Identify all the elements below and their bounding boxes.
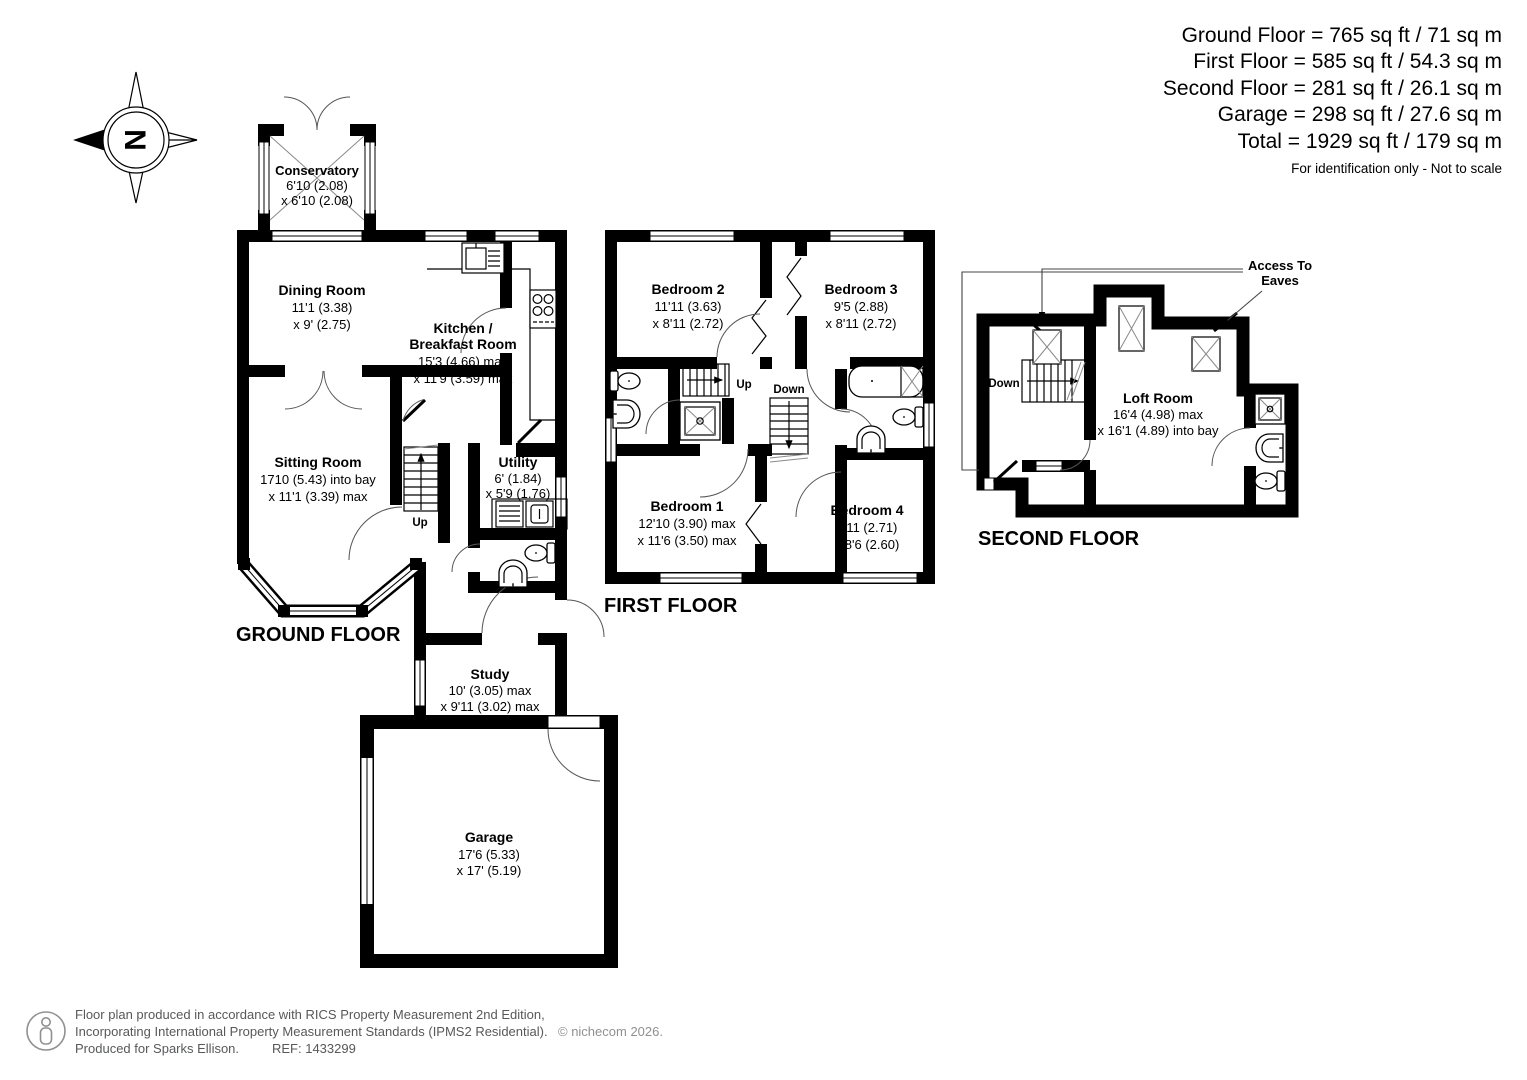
loft-room-label: Loft Room xyxy=(1123,390,1193,406)
study-dim2: x 9'11 (3.02) max xyxy=(440,699,540,714)
first-up-label: Up xyxy=(736,379,751,391)
bedroom3-label: Bedroom 3 xyxy=(824,281,897,297)
footer-ref: REF: 1433299 xyxy=(272,1041,356,1056)
sink-icon xyxy=(857,426,885,453)
access-to-eaves-label-1: Access To xyxy=(1248,258,1312,273)
bedroom4-label: Bedroom 4 xyxy=(830,502,903,518)
hob-icon xyxy=(530,290,556,328)
bedroom1-label: Bedroom 1 xyxy=(650,498,723,514)
utility-label: Utility xyxy=(499,454,538,470)
bedroom2-dim2: x 8'11 (2.72) xyxy=(653,316,724,331)
ground-stairs-up xyxy=(404,445,438,511)
garage-dim1: 17'6 (5.33) xyxy=(458,847,520,862)
utility-dim1: 6' (1.84) xyxy=(494,471,541,486)
ground-floor-plan: Conservatory 6'10 (2.08) x 6'10 (2.08) D… xyxy=(236,97,618,968)
loft-room-dim1: 16'4 (4.98) max xyxy=(1113,407,1203,422)
conservatory-label: Conservatory xyxy=(275,163,360,178)
bedroom1-dim1: 12'10 (3.90) max xyxy=(638,516,736,531)
summary-total: Total = 1929 sq ft / 179 sq m xyxy=(1238,130,1502,153)
second-down-label: Down xyxy=(988,378,1019,390)
toilet-icon xyxy=(610,371,640,391)
sitting-room-dim2: x 11'1 (3.39) max xyxy=(268,489,368,504)
eaves-hatch-icon xyxy=(1192,337,1220,371)
kitchen-dim1: 15'3 (4.66) max xyxy=(418,354,508,369)
compass-north-letter: N xyxy=(118,129,151,151)
sink-icon xyxy=(1256,434,1283,462)
washing-machine-icon xyxy=(496,501,523,527)
dining-room-label: Dining Room xyxy=(278,282,365,298)
study-label: Study xyxy=(471,666,510,682)
garage-label: Garage xyxy=(465,829,513,845)
bedroom4-dim1: 8'11 (2.71) xyxy=(837,520,898,535)
toilet-icon xyxy=(1255,471,1285,491)
compass-rose-icon: N xyxy=(73,72,197,203)
bedroom3-dim2: x 8'11 (2.72) xyxy=(826,316,897,331)
conservatory-dim2: x 6'10 (2.08) xyxy=(281,193,353,208)
utility-dim2: x 5'9 (1.76) xyxy=(486,486,551,501)
bedroom4-dim2: x 8'6 (2.60) xyxy=(835,537,900,552)
eaves-hatch-icon xyxy=(1033,330,1061,364)
access-to-eaves-label-2: Eaves xyxy=(1261,273,1299,288)
loft-room-dim2: x 16'1 (4.89) into bay xyxy=(1098,423,1219,438)
summary-disclaimer: For identification only - Not to scale xyxy=(1291,161,1502,176)
sink-icon xyxy=(613,400,640,428)
shower-icon xyxy=(1255,394,1285,424)
sink-icon xyxy=(499,560,527,587)
bedroom2-dim1: 11'11 (3.63) xyxy=(654,299,721,314)
kitchen-dim2: x 11'9 (3.59) max xyxy=(413,371,513,386)
footer-copyright: © nichecom 2026. xyxy=(558,1024,663,1039)
ground-floor-title: GROUND FLOOR xyxy=(236,624,401,646)
first-floor-title: FIRST FLOOR xyxy=(604,595,738,617)
sitting-room-dim1: 1710 (5.43) into bay xyxy=(260,472,376,487)
toilet-icon xyxy=(893,407,923,427)
bay-window xyxy=(238,558,422,617)
summary-ground-floor: Ground Floor = 765 sq ft / 71 sq m xyxy=(1182,24,1502,47)
bedroom1-dim2: x 11'6 (3.50) max xyxy=(637,533,737,548)
bedroom3-dim1: 9'5 (2.88) xyxy=(834,299,889,314)
toilet-icon xyxy=(525,543,555,563)
appliance-icon xyxy=(526,501,553,527)
bedroom2-label: Bedroom 2 xyxy=(651,281,724,297)
footer-line-3: Produced for Sparks Ellison. xyxy=(75,1041,239,1056)
person-badge-icon xyxy=(27,1012,65,1050)
skylight-icon xyxy=(1119,306,1144,351)
footer-line-2: Incorporating International Property Mea… xyxy=(75,1024,548,1039)
summary-second-floor: Second Floor = 281 sq ft / 26.1 sq m xyxy=(1163,77,1502,100)
kitchen-label-1: Kitchen / xyxy=(433,320,492,336)
shower-icon xyxy=(680,402,720,440)
summary-garage: Garage = 298 sq ft / 27.6 sq m xyxy=(1218,103,1502,126)
footer-line-1: Floor plan produced in accordance with R… xyxy=(75,1007,545,1022)
study-dim1: 10' (3.05) max xyxy=(449,683,532,698)
conservatory-dim1: 6'10 (2.08) xyxy=(286,178,348,193)
dining-room-dim1: 11'1 (3.38) xyxy=(292,300,353,315)
second-floor-plan: Access To Eaves Loft Room 16'4 (4.98) ma… xyxy=(962,258,1312,550)
second-floor-title: SECOND FLOOR xyxy=(978,528,1140,550)
kitchen-sink-icon xyxy=(462,243,504,273)
summary-first-floor: First Floor = 585 sq ft / 54.3 sq m xyxy=(1193,50,1502,73)
first-floor-plan: Bedroom 2 11'11 (3.63) x 8'11 (2.72) Bed… xyxy=(604,230,935,617)
kitchen-label-2: Breakfast Room xyxy=(409,336,516,352)
first-down-label: Down xyxy=(773,384,804,396)
bath-icon xyxy=(849,366,923,397)
ground-up-label: Up xyxy=(412,517,427,529)
floor-plan-canvas: N Ground Floor = 765 sq ft / 71 sq m Fir… xyxy=(0,0,1527,1080)
footer: Floor plan produced in accordance with R… xyxy=(27,1007,663,1056)
dining-room-dim2: x 9' (2.75) xyxy=(293,317,350,332)
garage-dim2: x 17' (5.19) xyxy=(457,863,522,878)
sitting-room-label: Sitting Room xyxy=(274,454,361,470)
area-summary: Ground Floor = 765 sq ft / 71 sq m First… xyxy=(1163,24,1502,176)
